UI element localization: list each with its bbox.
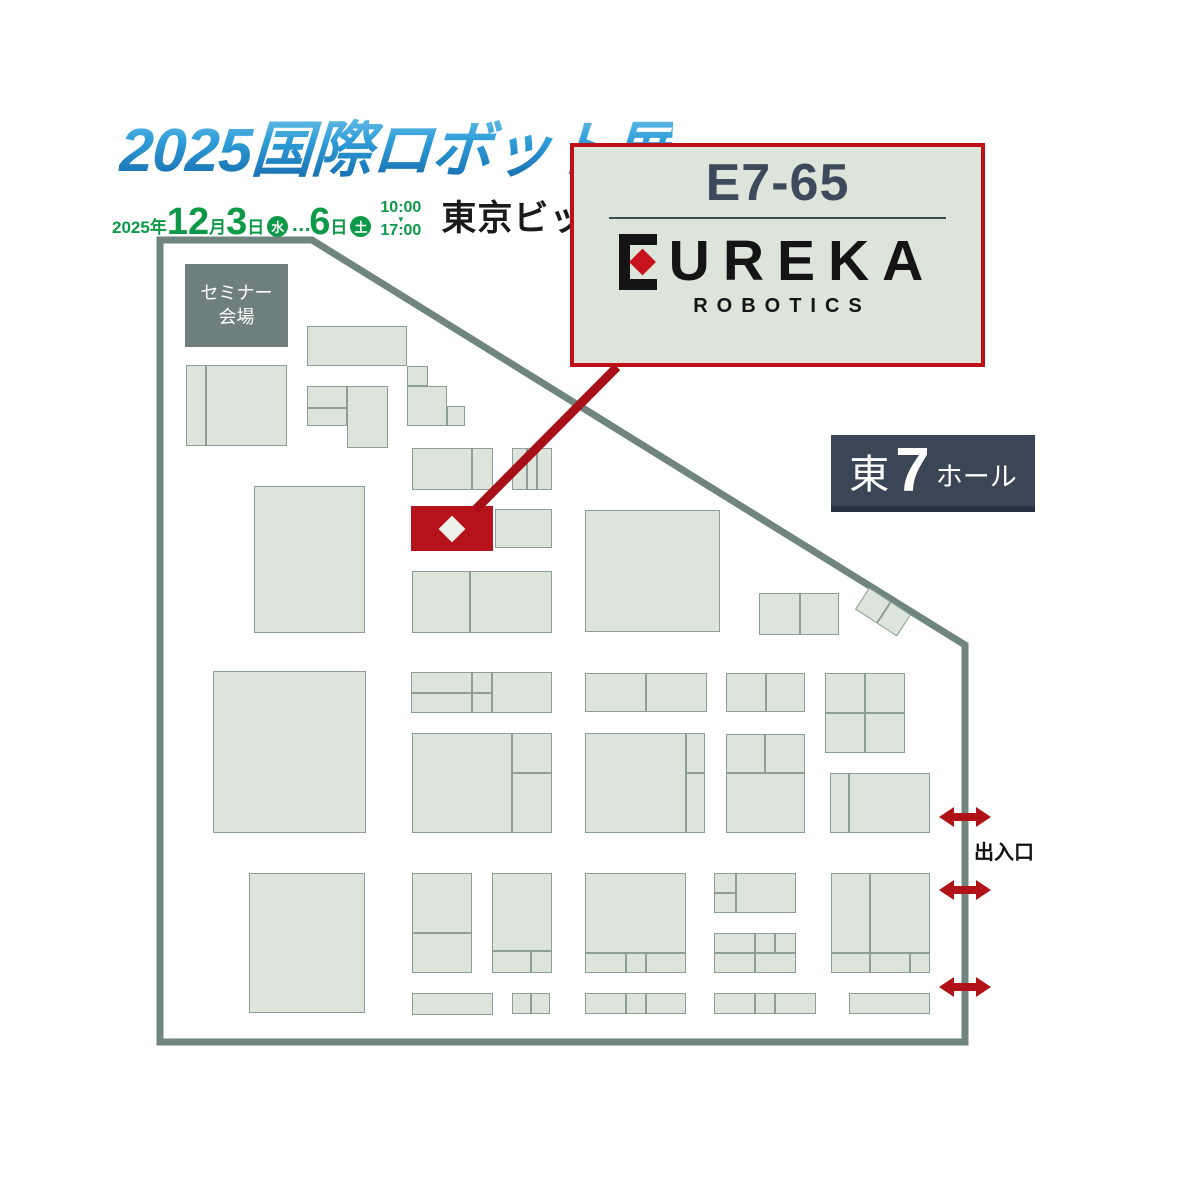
hall-name-badge: 東 7 ホール <box>831 435 1035 512</box>
booth-callout-card: E7-65 UREKA ROBOTICS <box>570 143 985 367</box>
booth-cell <box>412 571 470 633</box>
arrow-bar <box>951 813 979 821</box>
booth-cell <box>646 993 686 1014</box>
date-day-start: 3 <box>226 203 247 241</box>
booth-cell <box>411 693 472 713</box>
booth-cell <box>626 953 646 973</box>
booth-cell <box>714 893 736 913</box>
booth-cell <box>831 873 870 953</box>
brand-subtitle: ROBOTICS <box>684 295 871 318</box>
highlighted-booth-e7-65 <box>411 506 493 551</box>
callout-divider <box>609 217 946 219</box>
booth-cell <box>412 993 493 1015</box>
entrance-exit-arrow-icon <box>939 807 991 827</box>
booth-cell <box>531 993 550 1014</box>
booth-cell <box>831 953 870 973</box>
booth-cell <box>686 773 705 833</box>
booth-cell <box>736 873 796 913</box>
booth-cell <box>472 448 493 490</box>
booth-cell <box>870 953 910 973</box>
booth-cell <box>714 993 755 1014</box>
hall-number: 7 <box>895 440 929 502</box>
booth-cell <box>755 933 775 953</box>
booth-divider <box>876 602 890 623</box>
open-time: 10:00 <box>380 200 421 216</box>
booth-cell <box>910 953 930 973</box>
seminar-label-line1: セミナー <box>201 282 273 305</box>
date-day-end-suffix: 日 <box>330 213 347 241</box>
booth-cell <box>759 593 800 635</box>
booth-cell <box>470 571 552 633</box>
booth-cell <box>865 713 905 753</box>
eureka-logo: UREKA <box>619 233 937 290</box>
booth-cell <box>412 733 512 833</box>
booth-cell <box>495 509 552 548</box>
booth-cell-rotated <box>855 587 911 636</box>
booth-cell <box>775 993 816 1014</box>
date-day-end: 6 <box>309 203 330 241</box>
exhibition-floor-map-flyer: 2025国際ロボット展 2025 年 12 月 3 日 水 … 6 日 土 10… <box>0 0 1181 1181</box>
booth-cell <box>585 873 686 953</box>
booth-cell <box>307 386 347 408</box>
date-year-suffix: 年 <box>150 213 167 241</box>
booth-cell <box>870 873 930 953</box>
seminar-label-line2: 会場 <box>219 306 255 329</box>
booth-cell <box>249 873 365 1013</box>
close-time: 17:00 <box>380 223 421 239</box>
booth-cell <box>766 673 805 712</box>
weekday-sat-badge: 土 <box>350 216 371 237</box>
booth-cell <box>646 953 686 973</box>
date-ellipsis: … <box>291 214 309 241</box>
hall-prefix: 東 <box>849 442 889 500</box>
booth-cell <box>512 993 531 1014</box>
booth-cell <box>527 448 537 490</box>
booth-cell <box>585 953 626 973</box>
booth-cell <box>775 933 796 953</box>
booth-cell <box>472 693 492 713</box>
booth-cell <box>714 953 755 973</box>
weekday-wed-badge: 水 <box>267 216 288 237</box>
booth-cell <box>407 366 428 386</box>
date-month: 12 <box>167 203 209 241</box>
booth-cell <box>714 933 755 953</box>
booth-cell <box>765 734 805 773</box>
booth-cell <box>411 672 472 693</box>
booth-cell <box>755 953 796 973</box>
booth-cell <box>492 672 552 713</box>
booth-cell <box>347 386 388 448</box>
booth-cell <box>206 365 287 446</box>
booth-cell <box>585 993 626 1014</box>
booth-cell <box>512 733 552 773</box>
booth-cell <box>307 326 407 366</box>
booth-cell <box>585 510 720 632</box>
brand-name-rest: UREKA <box>669 233 937 290</box>
booth-cell <box>531 951 552 973</box>
eureka-e-glyph-icon <box>619 234 657 290</box>
booth-cell <box>865 673 905 713</box>
booth-cell <box>714 873 736 893</box>
booth-cell <box>726 673 766 712</box>
booth-cell <box>512 773 552 833</box>
booth-cell <box>537 448 552 490</box>
booth-cell <box>307 408 347 426</box>
booth-cell <box>492 951 531 973</box>
booth-cell <box>755 993 775 1014</box>
booth-cell <box>726 734 765 773</box>
booth-diamond-marker-icon <box>439 515 466 542</box>
booth-cell <box>492 873 552 951</box>
booth-cell <box>825 713 865 753</box>
arrow-bar <box>951 983 979 991</box>
booth-number: E7-65 <box>706 153 850 213</box>
booth-cell <box>213 671 366 833</box>
hall-suffix: ホール <box>936 447 1017 494</box>
booth-cell <box>254 486 365 633</box>
booth-cell <box>646 673 707 712</box>
booth-cell <box>830 773 849 833</box>
arrow-bar <box>951 886 979 894</box>
date-day-start-suffix: 日 <box>247 213 264 241</box>
date-year: 2025 <box>112 218 150 241</box>
booth-cell <box>626 993 646 1014</box>
booth-cell <box>726 773 805 833</box>
booth-cell <box>825 673 865 713</box>
booth-cell <box>186 365 206 446</box>
booth-cell <box>412 448 472 490</box>
booth-cell <box>686 733 705 773</box>
date-month-suffix: 月 <box>209 213 226 241</box>
seminar-area-box: セミナー 会場 <box>185 264 288 347</box>
entrance-exit-arrow-icon <box>939 880 991 900</box>
booth-cell <box>472 672 492 693</box>
booth-cell <box>447 406 465 426</box>
booth-cell <box>407 386 447 426</box>
booth-cell <box>412 933 472 973</box>
eureka-red-diamond-icon <box>629 248 656 275</box>
entrance-exit-arrow-icon <box>939 977 991 997</box>
booth-cell <box>849 773 930 833</box>
booth-cell <box>585 733 686 833</box>
booth-cell <box>512 448 527 490</box>
booth-cell <box>849 993 930 1014</box>
open-hours: 10:00 ▼ 17:00 <box>380 200 421 239</box>
booth-cell <box>800 593 839 635</box>
booth-cell <box>585 673 646 712</box>
booth-cell <box>412 873 472 933</box>
entrance-exit-label: 出入口 <box>974 836 1034 865</box>
